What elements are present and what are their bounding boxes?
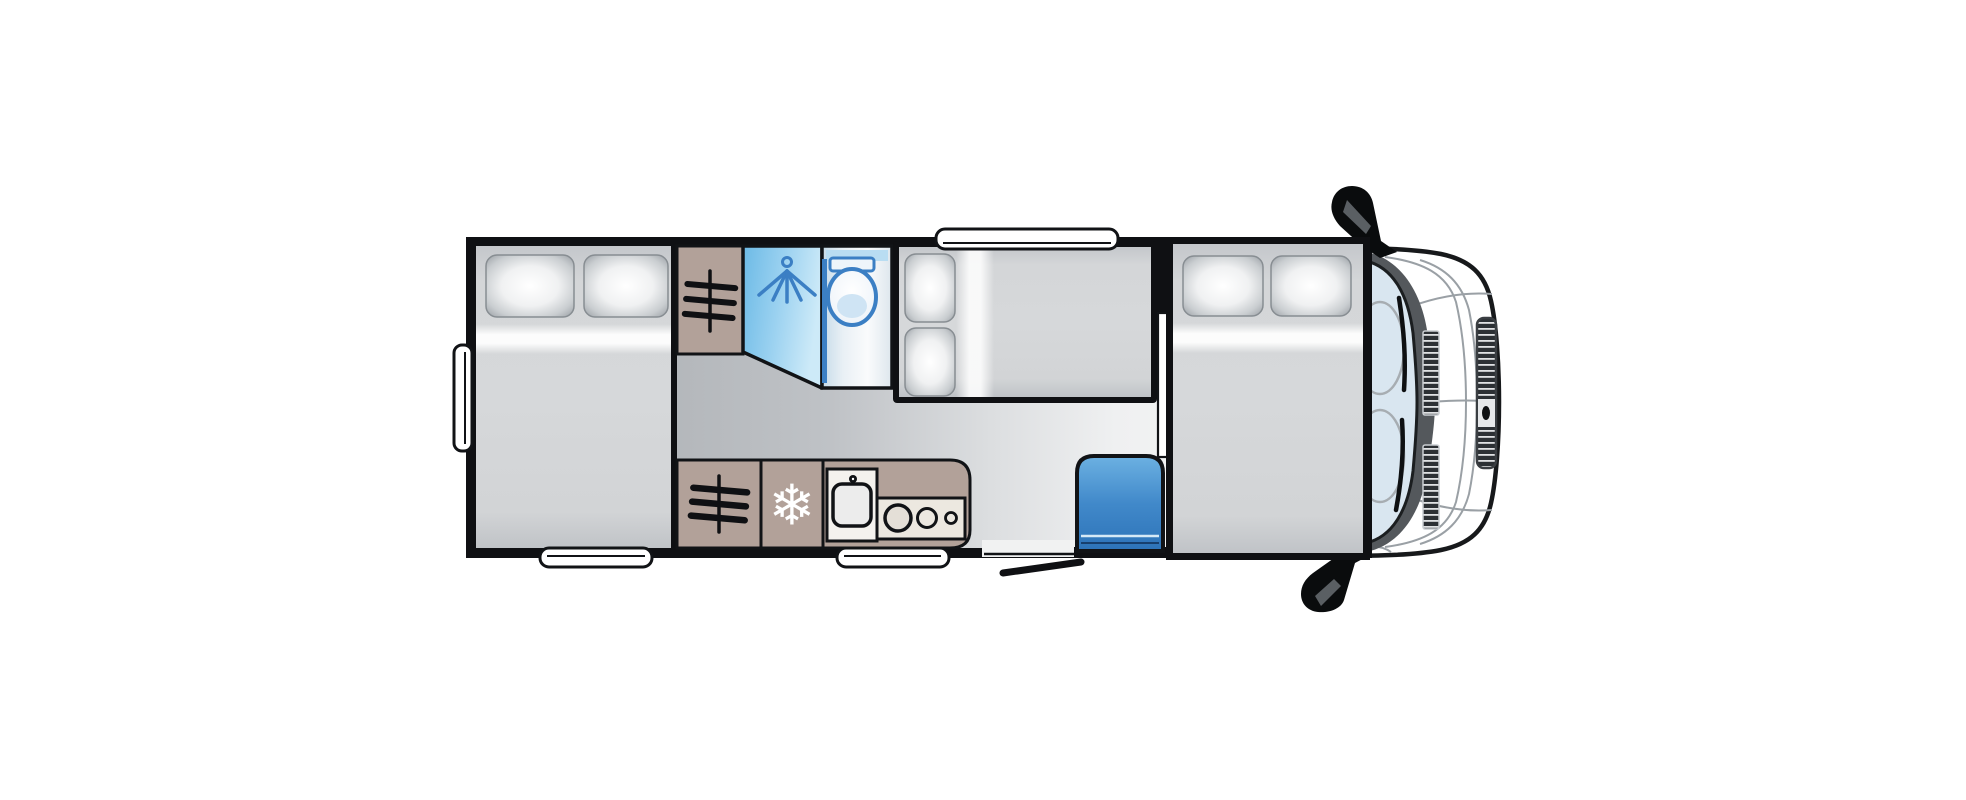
front-double-bed [1166, 237, 1370, 560]
rear-double-bed [476, 246, 677, 548]
mid-double-bed [893, 241, 1157, 403]
rear-bed-pillow-right [584, 255, 668, 317]
skylight-frame [936, 229, 1118, 249]
sink-tap-center [852, 478, 854, 480]
snowflake-icon: ❄ [769, 474, 816, 539]
front-bed-pillow-right [1271, 256, 1351, 316]
entrance-door [982, 540, 1081, 573]
hob-burner-large [885, 505, 911, 531]
motorhome-floorplan-canvas: ❄ [0, 0, 1966, 800]
front-bed-pillow-left [1183, 256, 1263, 316]
rear-side-window-frame [454, 345, 472, 451]
dash-vent-upper [1423, 331, 1439, 415]
rear-bed-sheet-stripe [476, 324, 674, 354]
kitchen-sink [833, 484, 871, 526]
travel-seat [1074, 456, 1166, 557]
kitchen-area: ❄ [677, 460, 970, 548]
rear-side-window [454, 345, 472, 451]
grille-badge [1482, 406, 1490, 420]
wardrobe-rear [677, 246, 743, 354]
front-grille [1477, 318, 1496, 468]
toilet-icon [828, 258, 876, 325]
dash-vent-lower [1423, 445, 1439, 529]
rear-bed-pillow-left [486, 255, 574, 317]
roof-skylight-window [936, 229, 1118, 249]
toilet-cubicle-door [822, 259, 827, 383]
rear-bottom-window [540, 548, 652, 567]
mid-bed-pillow-bottom [905, 328, 955, 396]
door-swing-line [1003, 562, 1081, 573]
mid-bed-sheet-stripe [956, 247, 994, 397]
kitchen-window [837, 548, 949, 567]
kitchen-window-frame [837, 548, 949, 567]
mid-bed-pillow-top [905, 254, 955, 322]
motorhome-floorplan: ❄ [0, 0, 1966, 800]
rear-bottom-window-frame [540, 548, 652, 567]
front-bed-sheet-stripe [1173, 323, 1363, 353]
toilet-bowl-inner [837, 294, 867, 318]
